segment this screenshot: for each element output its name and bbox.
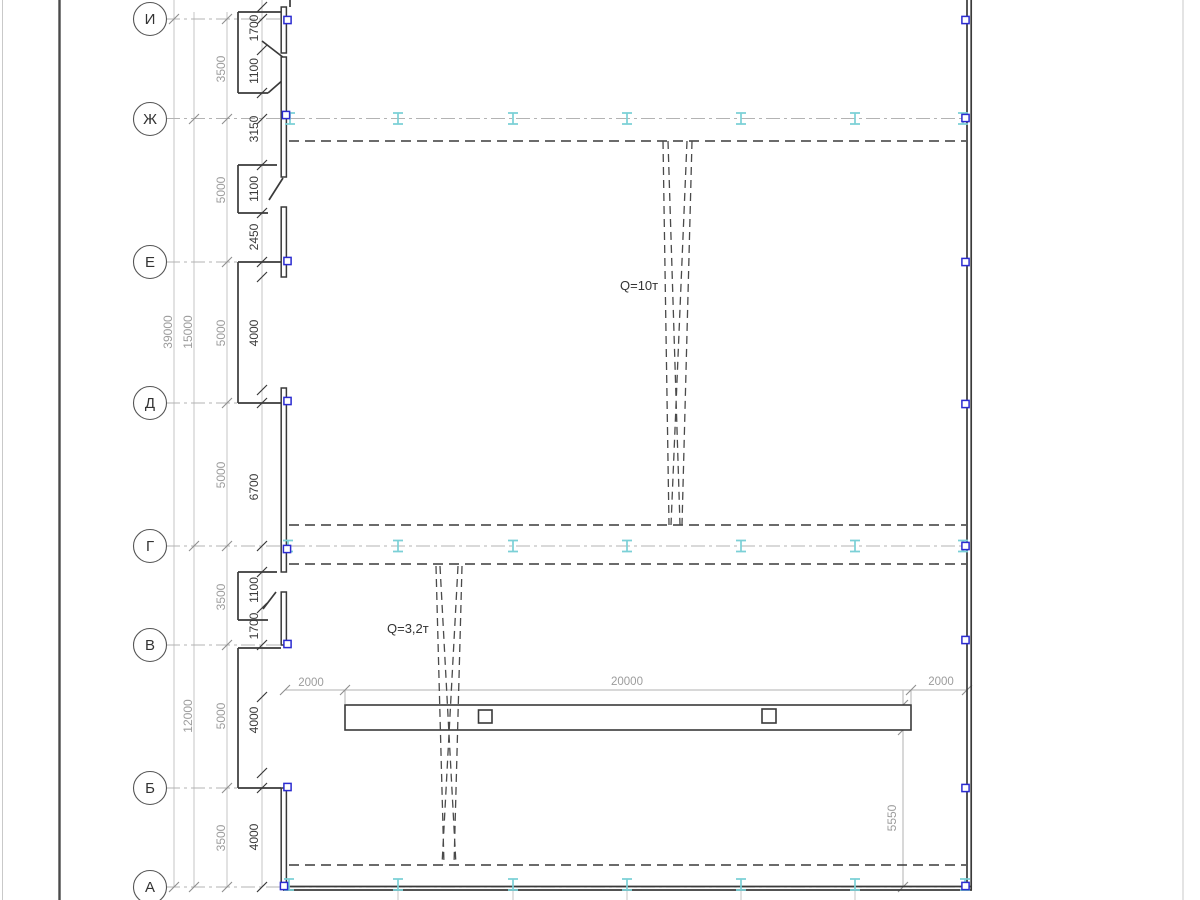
dim-text: 12000 [181,699,195,733]
dim-text: 20000 [611,676,643,688]
beam-trolley-square [479,710,493,723]
building-plan-drawing: И Ж Е Д Г В Б А 1700 1100 3150 1100 2450… [0,0,1200,900]
column-marker-icon [962,882,969,889]
dim-text: 1700 [247,14,261,41]
dim-text: 5550 [885,804,899,831]
dim-text: 15000 [181,315,195,349]
column-marker-icon [962,784,969,791]
plan-svg: И Ж Е Д Г В Б А 1700 1100 3150 1100 2450… [0,0,1200,900]
left-wall [238,0,290,887]
column-marker-icon [962,636,969,643]
crane-10t-zone [663,141,692,525]
axis-markers: И Ж Е Д Г В Б А [134,3,167,900]
dim-text: 4000 [247,706,261,733]
column-marker-icon [283,545,290,552]
crane-rail-ibeam-icon [393,879,403,890]
axis-label: Ж [143,111,157,128]
column-marker-icon [284,257,291,264]
column-marker-icon [282,111,289,118]
column-marker-icon [962,542,969,549]
axis-label: Е [145,254,155,271]
dim-text: 5000 [214,702,228,729]
dimension-chain-lines [174,0,967,900]
axis-label: В [145,637,155,654]
column-marker-icon [280,882,287,889]
crane-rail-symbols [283,113,970,890]
dim-text: 2000 [298,677,324,689]
column-marker-icon [962,114,969,121]
column-marker-icon [284,16,291,23]
dim-text: 1100 [247,577,261,603]
axis-label: А [145,879,155,896]
column-markers [280,16,969,889]
crane-runway-lines [289,141,966,865]
dim-text: 6700 [247,473,261,500]
column-marker-icon [962,16,969,23]
crane-rail-ibeam-icon [736,879,746,890]
beam-trolley-square [762,709,776,723]
crane-capacity-label: Q=3,2т [387,621,429,636]
dim-text: 5000 [214,461,228,488]
crane-rail-ibeam-icon [850,879,860,890]
dim-text: 3500 [214,583,228,610]
dim-text: 1100 [247,58,261,84]
dimension-ticks [169,2,972,892]
column-marker-icon [962,400,969,407]
dim-text: 1100 [247,176,261,202]
axis-label: Д [145,395,155,412]
wall-segment-dims: 1700 1100 3150 1100 2450 4000 6700 1100 … [247,14,261,850]
dim-text: 1700 [247,612,261,639]
axis-label: И [145,11,156,28]
dim-text: 39000 [161,315,175,349]
dim-text: 3500 [214,824,228,851]
dim-text: 4000 [247,823,261,850]
dim-text: 5000 [214,319,228,346]
crane-rail-ibeam-icon [622,879,632,890]
axis-label: Г [146,538,154,555]
right-wall [967,0,971,890]
dim-text: 4000 [247,319,261,346]
top-dims: 2000 20000 2000 900 5550 [298,676,954,831]
column-marker-icon [284,640,291,647]
crane-rail-ibeam-icon [508,879,518,890]
crane-capacity-label: Q=10т [620,278,658,293]
axis-label: Б [145,780,155,797]
dim-text: 3150 [247,115,261,142]
dim-text: 2000 [928,676,954,688]
dim-text: 5000 [214,176,228,203]
dim-text: 2450 [247,223,261,250]
dim-text: 3500 [214,55,228,82]
sheet-frame [3,0,1184,900]
column-marker-icon [284,397,291,404]
monorail-beam [345,705,911,730]
column-marker-icon [962,258,969,265]
column-marker-icon [284,783,291,790]
